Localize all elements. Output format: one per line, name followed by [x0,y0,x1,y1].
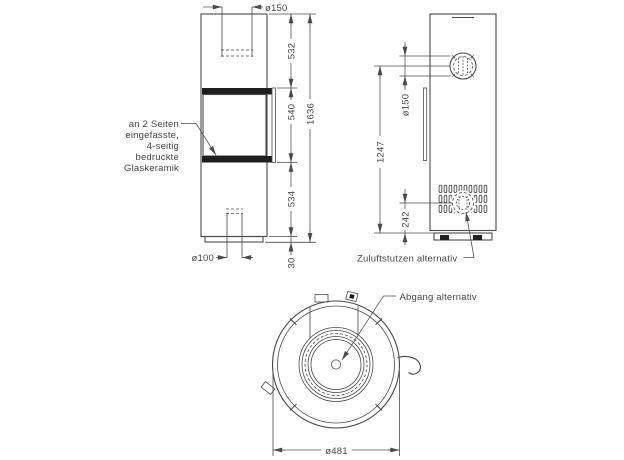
front-plinth [205,237,263,243]
foot-right [473,235,482,240]
top-view: Abgang alternativ ø481 [261,291,477,457]
window-opening [203,95,266,157]
side-view: ø150 1247 242 Zuluftstutzen alternativ [357,14,496,265]
dim-air-diameter: ø100 [192,253,214,264]
window-bottom-band [202,156,272,163]
glass-note: an 2 Seiten eingefasste, 4-seitig bedruc… [124,119,216,174]
dim-flue-diameter-side: ø150 [401,94,412,116]
air-inlet-leader [466,212,474,258]
dim-540: 540 [287,104,298,120]
top-center-outlet [331,360,340,369]
glass-note-line1: an 2 Seiten [129,119,179,130]
glass-edge-side [424,88,427,161]
glass-note-leader [196,124,216,156]
dim-242: 242 [401,211,412,227]
glass-note-line3: 4-seitig [147,141,179,152]
outlet-label: Abgang alternativ [400,292,477,303]
dim-30: 30 [287,258,298,269]
glass-note-line4: bedruckte [135,152,179,163]
glass-note-line2: eingefasste, [125,130,179,141]
front-body [201,14,267,237]
dim-534: 534 [287,191,298,207]
dim-481: ø481 [325,446,347,457]
side-glass-edge [272,88,276,163]
top-tab [315,295,328,303]
air-inlet-outlet [451,191,476,216]
top-flue-rings [299,328,373,402]
dim-532: 532 [287,43,298,59]
top-latch [346,291,358,301]
foot-left [440,235,449,240]
front-view: ø150 532 540 534 1636 30 ø100 an 2 Seite… [124,3,317,268]
glass-note-line5: Glaskeramik [124,163,179,174]
door-handle [398,356,421,374]
window-top-band [202,88,272,95]
flue-outlet [450,53,476,79]
outlet-leader [342,296,384,360]
dim-1636: 1636 [306,103,317,125]
dim-1247: 1247 [376,141,387,163]
air-inlet-label: Zuluftstutzen alternativ [357,254,457,265]
dim-flue-diameter-front: ø150 [265,3,287,14]
technical-drawing: ø150 532 540 534 1636 30 ø100 an 2 Seite… [0,0,624,460]
stove-dimension-diagram: ø150 532 540 534 1636 30 ø100 an 2 Seite… [0,0,624,460]
